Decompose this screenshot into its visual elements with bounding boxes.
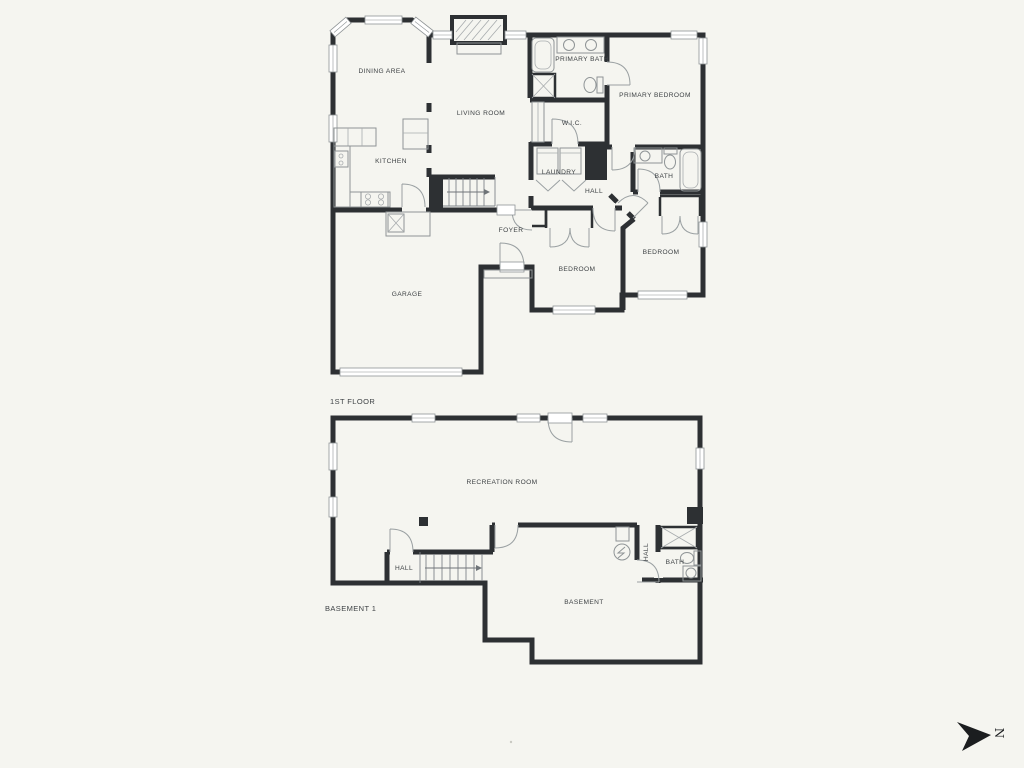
first-floor-labels: DINING AREA LIVING ROOM KITCHEN PRIMARY … <box>330 56 691 406</box>
vanity-icon <box>634 148 662 163</box>
bedroom-b-closet <box>660 196 700 216</box>
north-label: N <box>992 728 1006 739</box>
room-label-hall-bath: HALL <box>643 543 650 561</box>
electrical-icon <box>614 544 630 560</box>
room-label-recreation: RECREATION ROOM <box>466 479 537 486</box>
room-label-bedroom-a: BEDROOM <box>559 266 596 273</box>
room-label-basement: BASEMENT <box>564 599 603 606</box>
room-label-primary-bedroom: PRIMARY BEDROOM <box>619 92 691 99</box>
electrical-panel <box>614 527 630 560</box>
toilet-icon <box>665 155 676 169</box>
first-floor-stairs <box>443 177 495 206</box>
room-label-basement-bath: BATH <box>666 559 685 566</box>
basement-windows <box>329 414 704 517</box>
compass: N <box>957 722 1006 751</box>
room-label-wic: W.I.C. <box>562 120 582 127</box>
laundry-bifold-doors <box>536 180 586 191</box>
floor-title-1st: 1ST FLOOR <box>330 397 375 406</box>
counter <box>350 192 390 207</box>
chimney-block <box>687 507 703 524</box>
room-label-living: LIVING ROOM <box>457 110 505 117</box>
first-floor-plan: DINING AREA LIVING ROOM KITCHEN PRIMARY … <box>329 16 707 406</box>
primary-bath-fixtures <box>532 37 604 98</box>
basement-plan: RECREATION ROOM HALL HALL BATH BASEMENT … <box>325 413 704 662</box>
stove-icon <box>361 192 388 207</box>
sink-icon <box>564 40 575 51</box>
wic-fixtures <box>532 102 544 142</box>
stair-wall-block <box>429 176 443 212</box>
panel-box <box>616 527 629 541</box>
bedroom-b-closet-doors <box>662 216 698 234</box>
garage-entry-door <box>402 184 425 207</box>
bedroom-a-closet-doors <box>550 228 589 247</box>
sink-icon <box>640 151 650 161</box>
basement-stairs <box>420 552 482 583</box>
counter <box>334 128 376 146</box>
room-label-garage: GARAGE <box>392 291 423 298</box>
room-label-laundry: LAUNDRY <box>542 169 576 176</box>
north-arrow-icon <box>957 722 991 751</box>
room-label-bath: BATH <box>655 173 674 180</box>
coat-closet <box>532 208 546 226</box>
bedroom-a-closet <box>546 208 592 228</box>
sink-icon <box>586 40 597 51</box>
kitchen-peninsula <box>403 119 428 149</box>
floor-title-basement: BASEMENT 1 <box>325 604 376 613</box>
floor-plan-svg: DINING AREA LIVING ROOM KITCHEN PRIMARY … <box>0 0 1024 768</box>
room-label-primary-bath: PRIMARY BATH <box>555 56 609 63</box>
toilet-icon <box>584 78 596 93</box>
laundry-wall-block <box>585 142 607 180</box>
basement-entry-threshold <box>548 413 572 423</box>
room-label-dining: DINING AREA <box>359 68 406 75</box>
room-label-foyer: FOYER <box>499 227 524 234</box>
step-threshold <box>497 205 515 215</box>
basement-walls <box>333 418 703 662</box>
support-post <box>419 517 428 526</box>
room-label-bedroom-b: BEDROOM <box>643 249 680 256</box>
basement-labels: RECREATION ROOM HALL HALL BATH BASEMENT … <box>325 479 684 613</box>
room-label-hall: HALL <box>585 188 603 195</box>
sink-icon <box>686 568 696 578</box>
floor-plan-canvas: DINING AREA LIVING ROOM KITCHEN PRIMARY … <box>0 0 1024 768</box>
garage-fixtures <box>386 212 430 236</box>
watermark-dot <box>510 741 512 743</box>
room-label-kitchen: KITCHEN <box>375 158 407 165</box>
basement-openings <box>390 413 663 582</box>
fireplace-icon <box>452 17 505 54</box>
room-label-hall-stairs: HALL <box>395 565 413 572</box>
